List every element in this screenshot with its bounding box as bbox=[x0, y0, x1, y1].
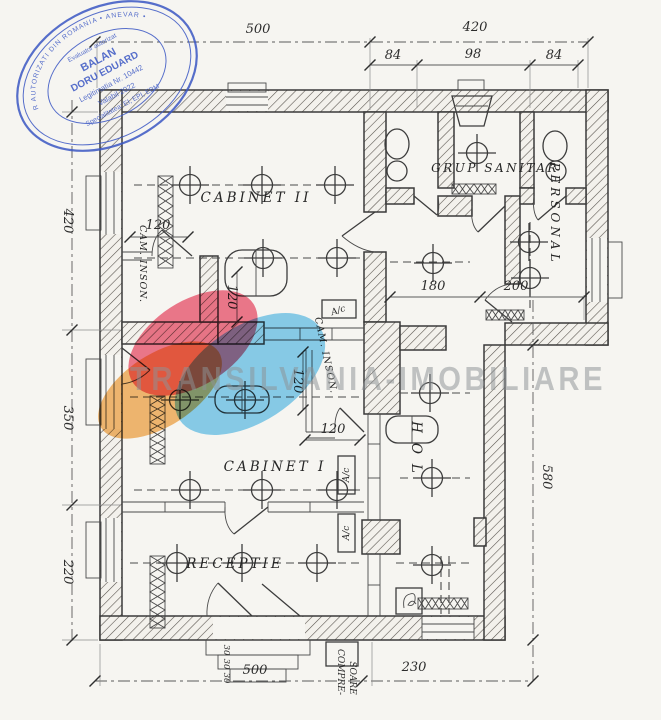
dimension-label: 98 bbox=[465, 47, 482, 62]
step-dimension: 30 bbox=[221, 645, 231, 656]
dimension-label: 200 bbox=[503, 279, 529, 294]
dimension-label: 420 bbox=[462, 20, 488, 35]
ceiling-lamp-icon bbox=[413, 546, 451, 584]
dimension-label: 84 bbox=[546, 48, 563, 63]
door-arc bbox=[225, 507, 268, 534]
ceiling-lamp-icon bbox=[414, 244, 452, 282]
compressor-box: COMPRE- SOARE bbox=[326, 642, 358, 695]
radiator-icon bbox=[418, 598, 468, 609]
ac-unit: A/c bbox=[338, 514, 355, 552]
room-label-grup-sanitar: GRUP SANITAR bbox=[431, 161, 559, 175]
room-label-cam-inson-a: CAM. INSON. bbox=[137, 225, 148, 303]
step-dimension: 30 bbox=[221, 673, 231, 684]
ac-unit: A/c bbox=[322, 300, 356, 318]
dimension-label: 84 bbox=[385, 48, 402, 63]
dimension-label: 220 bbox=[60, 559, 75, 585]
floorplan-drawing: A/c A/c A/c COMPRE- SOARE 30 30 30 bbox=[0, 0, 661, 720]
glazed-partitions bbox=[122, 252, 449, 616]
room-label-hol: HOL bbox=[408, 420, 424, 483]
room-label-cabinet2: CABINET II bbox=[201, 190, 312, 206]
door-arc bbox=[342, 212, 375, 252]
ceiling-lamp-icon bbox=[298, 544, 336, 582]
ceiling-lamp-icon bbox=[316, 166, 354, 204]
scanned-floorplan-page: A/c A/c A/c COMPRE- SOARE 30 30 30 bbox=[0, 0, 661, 720]
watermark-text: TRANSILVANIA-IMOBILIARE bbox=[130, 360, 606, 397]
partition bbox=[368, 414, 380, 520]
room-label-cabinet1: CABINET I bbox=[224, 459, 327, 475]
door-arc bbox=[207, 583, 300, 616]
dimension-label: 230 bbox=[401, 660, 427, 675]
ceiling-lamp-icon bbox=[243, 471, 281, 509]
ac-unit: A/c bbox=[338, 456, 355, 494]
partition bbox=[122, 502, 364, 512]
dimension-label: 580 bbox=[539, 465, 554, 490]
dimension-label: 350 bbox=[60, 406, 75, 431]
ceiling-lamp-icon bbox=[244, 239, 282, 277]
ceiling-lamp-icon bbox=[171, 471, 209, 509]
dimension-label: 500 bbox=[246, 22, 271, 37]
dimension-label: 120 bbox=[146, 218, 171, 233]
room-label-receptie: RECEPTIE bbox=[185, 556, 283, 572]
door-arc bbox=[414, 196, 439, 215]
room-label-personal: PERSONAL bbox=[548, 161, 562, 265]
partition bbox=[368, 554, 380, 616]
radiator-icon bbox=[452, 184, 496, 194]
compressor-label: SOARE bbox=[347, 661, 357, 695]
dimension-label: 180 bbox=[421, 279, 446, 294]
ceiling-lamp-icon bbox=[318, 239, 356, 277]
ac-unit-label: A/c bbox=[342, 526, 352, 542]
step-dimension: 30 bbox=[221, 659, 231, 670]
toilet-icon bbox=[385, 129, 409, 181]
dimension-label: 500 bbox=[243, 663, 268, 678]
radiator-icon bbox=[486, 310, 524, 320]
ac-unit-label: A/c bbox=[329, 304, 347, 318]
dimension-label: 120 bbox=[321, 422, 346, 437]
dimension-tick bbox=[528, 635, 539, 646]
compressor-label: COMPRE- bbox=[335, 649, 345, 695]
dimension-label: 420 bbox=[60, 208, 75, 234]
ac-unit-label: A/c bbox=[342, 468, 352, 484]
door-arc bbox=[472, 206, 505, 232]
